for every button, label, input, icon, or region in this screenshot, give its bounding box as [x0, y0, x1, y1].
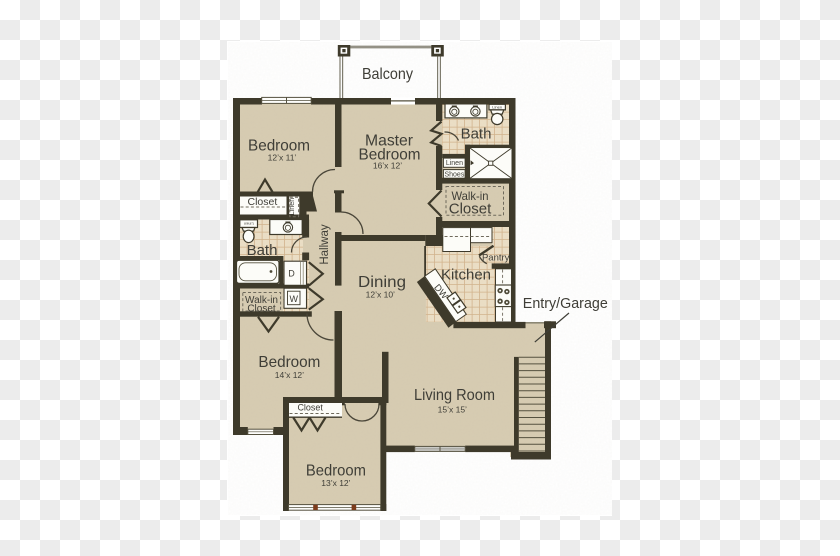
- svg-text:Linen: Linen: [492, 105, 502, 110]
- svg-text:14’x 12’: 14’x 12’: [275, 370, 304, 380]
- svg-text:Entry/Garage: Entry/Garage: [523, 295, 608, 312]
- svg-text:Closet: Closet: [247, 304, 276, 315]
- svg-text:Bedroom: Bedroom: [258, 354, 320, 371]
- svg-text:D: D: [288, 269, 295, 279]
- svg-text:W: W: [289, 294, 298, 304]
- svg-text:Closet: Closet: [297, 402, 323, 413]
- svg-text:13’x 12’: 13’x 12’: [321, 478, 350, 488]
- svg-text:Bath: Bath: [247, 242, 278, 259]
- svg-text:Closet: Closet: [449, 201, 492, 218]
- svg-text:Linen: Linen: [287, 198, 296, 216]
- svg-text:Kitchen: Kitchen: [441, 267, 491, 284]
- svg-text:Hallway: Hallway: [319, 224, 331, 265]
- svg-text:Bath: Bath: [461, 126, 492, 143]
- svg-text:Living Room: Living Room: [414, 387, 495, 404]
- svg-text:Closet: Closet: [248, 196, 278, 208]
- svg-text:Balcony: Balcony: [362, 66, 413, 83]
- svg-text:Linen: Linen: [244, 221, 254, 226]
- svg-text:16’x 12’: 16’x 12’: [373, 161, 402, 171]
- svg-text:Pantry: Pantry: [482, 253, 510, 264]
- svg-text:12’x 11’: 12’x 11’: [268, 152, 297, 162]
- svg-text:Linen: Linen: [446, 160, 463, 167]
- svg-text:15’x 15’: 15’x 15’: [438, 405, 467, 415]
- svg-text:Bedroom: Bedroom: [306, 462, 366, 479]
- svg-text:Shoes: Shoes: [444, 171, 464, 178]
- svg-text:12’x 10’: 12’x 10’: [366, 289, 395, 299]
